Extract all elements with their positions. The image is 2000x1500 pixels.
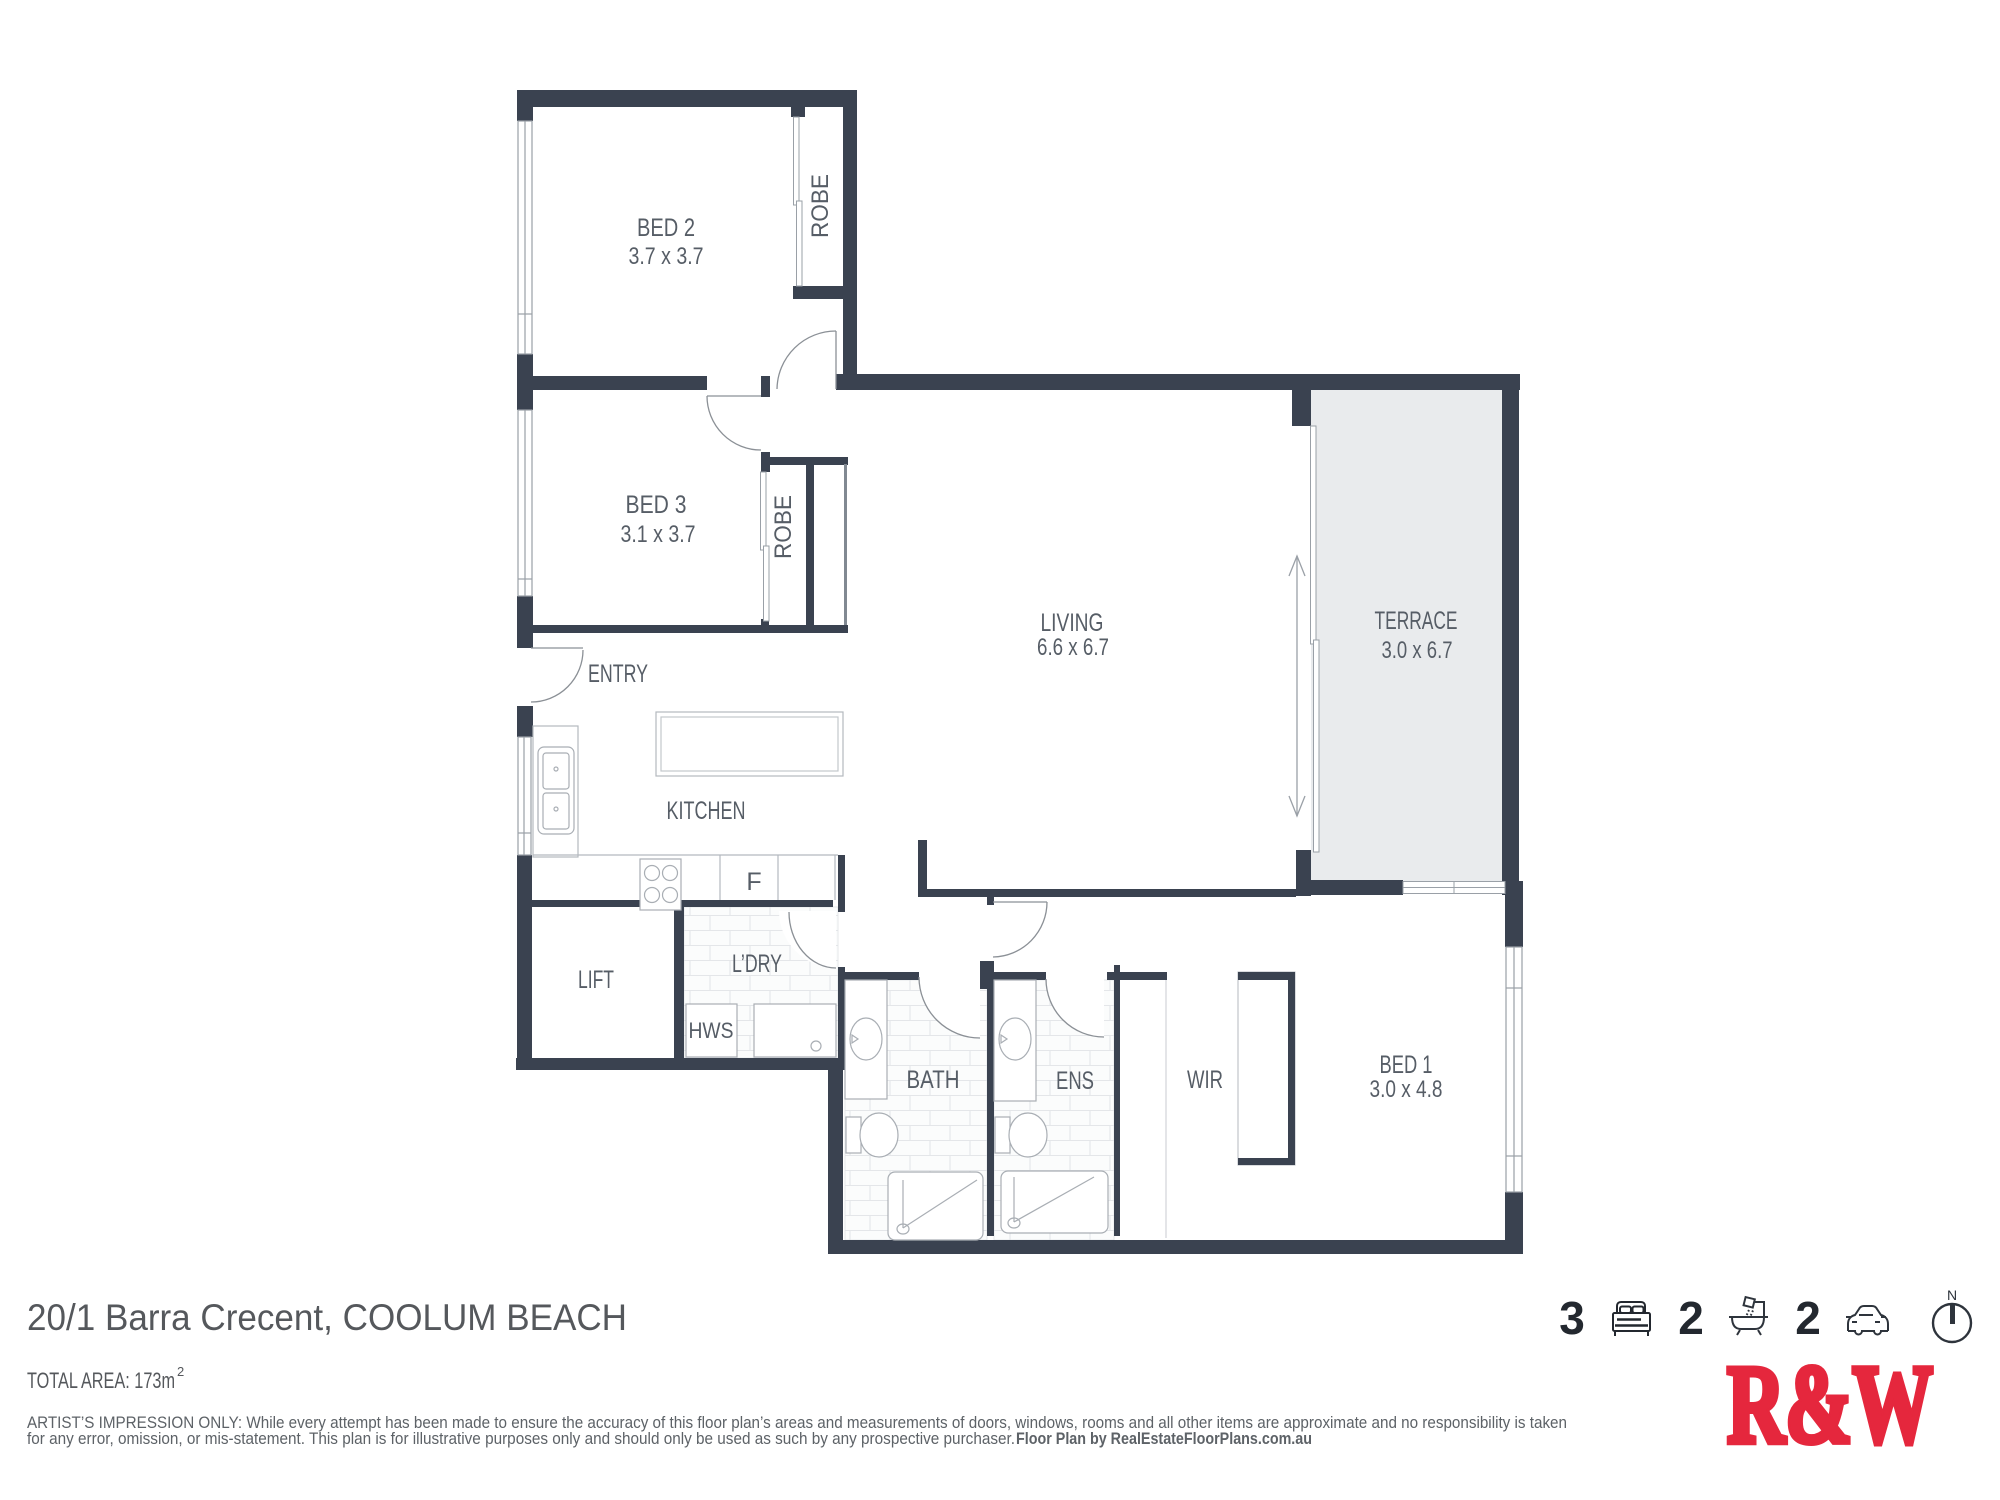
svg-text:BED 2: BED 2 xyxy=(637,214,695,242)
svg-text:Floor Plan by RealEstateFloorP: Floor Plan by RealEstateFloorPlans.com.a… xyxy=(1016,1430,1312,1448)
svg-text:ROBE: ROBE xyxy=(807,174,834,238)
svg-text:BED 1: BED 1 xyxy=(1380,1051,1433,1079)
svg-text:LIVING: LIVING xyxy=(1041,609,1104,637)
svg-text:3.1 x 3.7: 3.1 x 3.7 xyxy=(621,521,696,548)
svg-text:TOTAL AREA: 173m: TOTAL AREA: 173m xyxy=(27,1368,175,1393)
svg-text:BED 3: BED 3 xyxy=(626,491,687,519)
svg-text:KITCHEN: KITCHEN xyxy=(667,797,746,825)
svg-text:LIFT: LIFT xyxy=(578,966,614,994)
svg-text:R&W: R&W xyxy=(1727,1343,1933,1467)
svg-text:2: 2 xyxy=(177,1364,184,1379)
svg-text:F: F xyxy=(746,868,761,896)
svg-text:3.7 x 3.7: 3.7 x 3.7 xyxy=(629,243,704,270)
svg-text:N: N xyxy=(1947,1287,1957,1303)
svg-text:3.0 x 6.7: 3.0 x 6.7 xyxy=(1382,637,1453,664)
svg-text:20/1 Barra Crecent, COOLUM BEA: 20/1 Barra Crecent, COOLUM BEACH xyxy=(27,1297,627,1338)
svg-text:for any error, omission, or mi: for any error, omission, or mis-statemen… xyxy=(27,1430,1015,1448)
svg-text:TERRACE: TERRACE xyxy=(1375,607,1458,635)
svg-text:ENS: ENS xyxy=(1056,1067,1094,1095)
svg-text:3.0 x 4.8: 3.0 x 4.8 xyxy=(1370,1076,1443,1103)
svg-text:L’DRY: L’DRY xyxy=(732,950,782,978)
svg-text:BATH: BATH xyxy=(907,1066,960,1094)
svg-text:WIR: WIR xyxy=(1187,1066,1223,1094)
svg-text:3: 3 xyxy=(1559,1292,1585,1344)
svg-text:ROBE: ROBE xyxy=(770,495,797,559)
svg-text:2: 2 xyxy=(1678,1292,1704,1344)
svg-text:6.6 x 6.7: 6.6 x 6.7 xyxy=(1037,634,1109,661)
svg-text:ENTRY: ENTRY xyxy=(588,660,648,688)
svg-text:2: 2 xyxy=(1795,1292,1821,1344)
svg-text:HWS: HWS xyxy=(689,1018,734,1043)
